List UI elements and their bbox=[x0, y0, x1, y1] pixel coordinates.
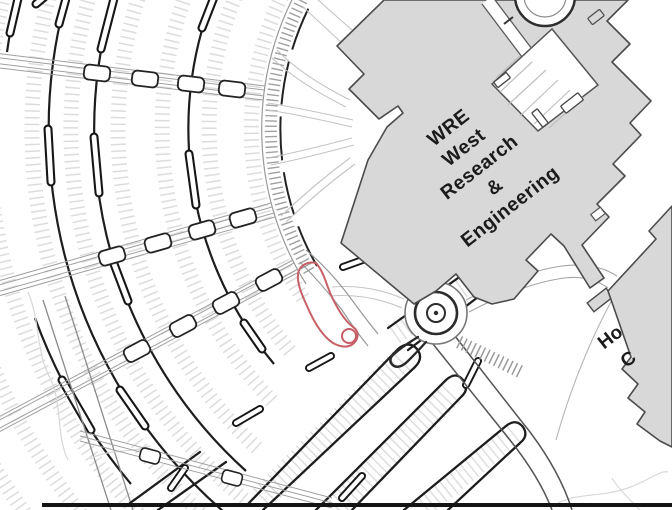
wre-building: WRE West Research & Engineering bbox=[337, 0, 651, 304]
highlighted-area bbox=[298, 263, 358, 347]
junction-island bbox=[139, 447, 162, 465]
path-along-right-building bbox=[556, 300, 612, 440]
sidewalk-band-hatching bbox=[271, 0, 314, 271]
right-edge-building: Ho C bbox=[587, 206, 672, 447]
highlighted-area-outline bbox=[298, 263, 358, 347]
roads bbox=[300, 250, 617, 510]
map-bottom-border bbox=[42, 503, 672, 507]
campus-map: WRE West Research & Engineering Ho C bbox=[0, 0, 672, 510]
crosswalk-hatching bbox=[459, 342, 521, 372]
junction-islands bbox=[83, 64, 284, 364]
campus-map-svg: WRE West Research & Engineering Ho C bbox=[0, 0, 672, 510]
roundabout-center-dot bbox=[434, 311, 438, 315]
junction-island bbox=[221, 469, 244, 487]
highlighted-area-loop bbox=[342, 329, 356, 343]
boundary-road bbox=[43, 296, 133, 510]
